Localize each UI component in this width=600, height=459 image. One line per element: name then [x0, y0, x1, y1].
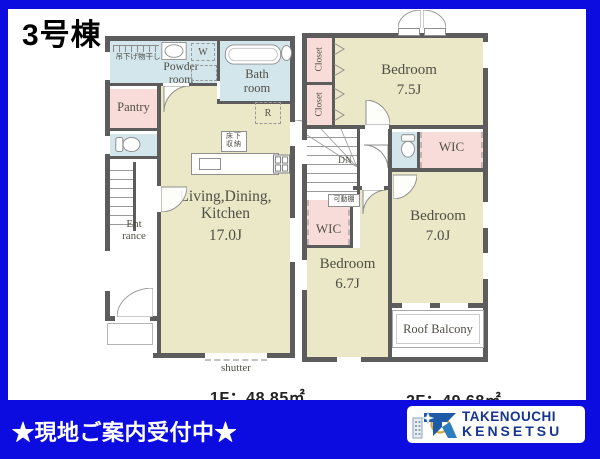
- wall-segment: [157, 86, 161, 353]
- toilet-icon: [115, 135, 141, 154]
- door-gap: [365, 125, 389, 129]
- window-gap: [337, 357, 361, 362]
- window-gap: [483, 202, 488, 228]
- door-arc: [393, 174, 417, 199]
- bedroom-70-size: 7.0J: [400, 228, 476, 245]
- ldk-size: 17.0J: [163, 227, 288, 244]
- shutter-sill: [205, 359, 267, 361]
- wic-right-label: WIC: [420, 140, 483, 155]
- bottom-banner: ★現地ご案内受付中★ TAKENOUCHI KENSETSU: [0, 400, 600, 459]
- window-gap: [402, 303, 430, 308]
- wic-left-label: WIC: [307, 222, 350, 237]
- window-gap: [290, 218, 295, 262]
- content-panel: [8, 9, 586, 400]
- door-arc: [362, 190, 386, 214]
- wall-segment: [110, 128, 157, 131]
- door-arc: [117, 288, 153, 317]
- washer-space: W: [191, 43, 215, 61]
- bedroom-67-label: Bedroom 6.7J: [310, 256, 385, 293]
- bedroom-67-size: 6.7J: [310, 276, 385, 293]
- laundry-hooks-icon: [113, 45, 159, 52]
- bedroom-75-size: 7.5J: [359, 82, 459, 99]
- stove-icon: [273, 154, 290, 174]
- closet-bottom-label: Closet: [315, 86, 326, 122]
- bedroom-70-label: Bedroom 7.0J: [400, 208, 476, 245]
- entrance-label: Ent rance: [115, 218, 153, 243]
- wall-segment: [392, 168, 483, 172]
- page-title: 3号棟: [22, 10, 102, 54]
- bedroom-75-label: Bedroom 7.5J: [359, 62, 459, 99]
- door-arc: [163, 86, 190, 113]
- company-logo: TAKENOUCHI KENSETSU: [407, 406, 585, 443]
- porch: [107, 323, 153, 345]
- door-arc: [423, 10, 446, 28]
- door-arc: [364, 144, 388, 168]
- door-arc: [161, 186, 187, 212]
- top-door-leaf: [398, 28, 420, 36]
- door-arc: [398, 10, 421, 28]
- movable-shelf-label: 可動棚: [328, 196, 360, 204]
- shutter-window: [205, 353, 267, 358]
- window-gap: [105, 251, 110, 291]
- floorplan-1f: 吊下げ物干し W Powder room Bath room Pantry R …: [105, 36, 295, 358]
- folding-door-icon: [333, 40, 346, 124]
- floor-storage-label: 床下収納: [224, 133, 244, 149]
- door-gap: [217, 81, 220, 99]
- wall-segment: [302, 357, 488, 362]
- roof-balcony-label: Roof Balcony: [396, 322, 480, 336]
- dn-label: DN: [332, 156, 358, 167]
- company-name-line2: KENSETSU: [462, 424, 562, 439]
- wall-segment: [105, 36, 295, 41]
- wall-segment: [302, 33, 488, 38]
- window-gap: [105, 136, 110, 154]
- wall-segment: [110, 156, 157, 159]
- window-gap: [483, 42, 488, 68]
- fridge-space: R: [255, 102, 281, 124]
- window-gap: [440, 303, 468, 308]
- bath-faucet: [281, 45, 292, 61]
- door-arc: [365, 100, 390, 125]
- bathtub-icon: [224, 44, 282, 65]
- washer-label: W: [198, 47, 207, 58]
- company-logo-mark-icon: [412, 409, 458, 440]
- wall-segment: [290, 36, 295, 358]
- window-gap: [302, 260, 307, 290]
- company-name-line1: TAKENOUCHI: [462, 410, 562, 424]
- flyer-page: 3号棟 吊下げ物干し: [0, 0, 600, 459]
- top-door-leaf: [424, 28, 446, 36]
- shutter-label: shutter: [203, 362, 269, 374]
- pantry-label: Pantry: [110, 100, 157, 114]
- window-gap: [483, 253, 488, 279]
- company-name: TAKENOUCHI KENSETSU: [462, 410, 562, 439]
- sink-icon: [161, 42, 187, 60]
- wall-segment: [307, 82, 332, 85]
- banner-text: ★現地ご案内受付中★: [12, 415, 237, 447]
- fridge-label: R: [265, 108, 272, 119]
- wall-segment: [307, 245, 353, 248]
- bedroom-67-name: Bedroom: [310, 256, 385, 273]
- shower-door: [191, 65, 217, 81]
- kitchen-sink: [199, 158, 221, 170]
- floorplan-2f: Closet Closet Bedroom 7.5J DN WIC 可動棚 WI…: [302, 10, 488, 362]
- bedroom-75-name: Bedroom: [359, 62, 459, 79]
- bedroom-70-name: Bedroom: [400, 208, 476, 225]
- closet-top-label: Closet: [315, 41, 326, 77]
- bath-room-label: Bath room: [231, 67, 283, 95]
- toilet-icon: [399, 134, 417, 158]
